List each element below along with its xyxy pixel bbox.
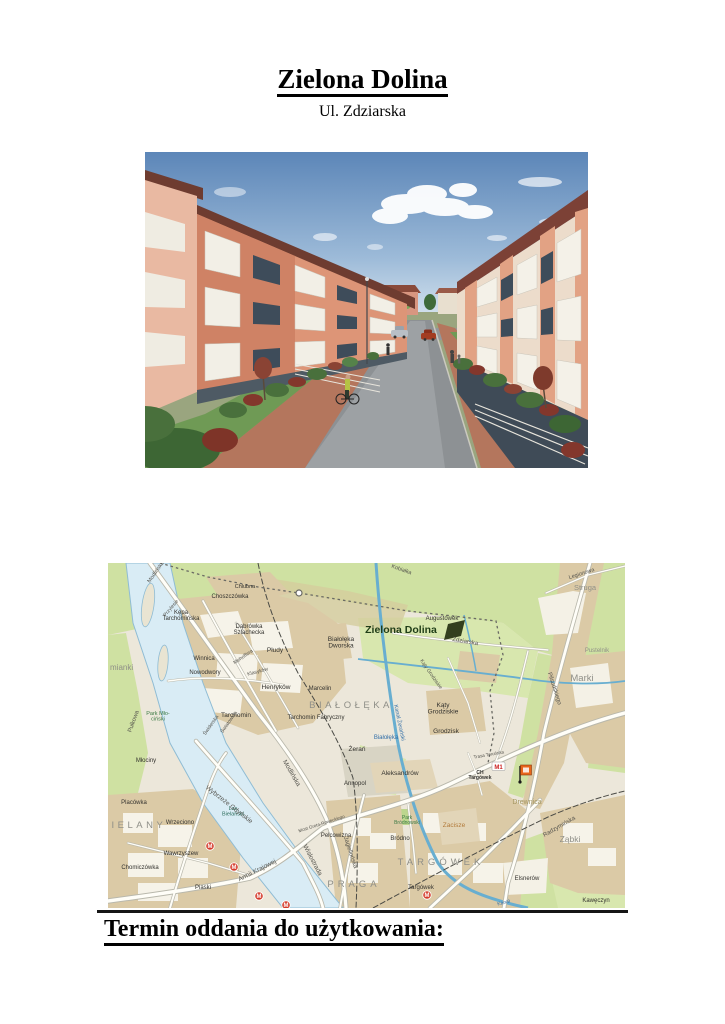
- map-label: Chomiczówka: [121, 865, 159, 871]
- map-label: Płudy: [267, 647, 284, 654]
- location-map-svg: M1 MMMMM ChlubnaChoszczówkaKępaTarchomiń…: [108, 563, 625, 908]
- metro-station-letter: M: [232, 865, 237, 871]
- map-label: Marki: [570, 673, 593, 684]
- map-label: Tarchomin Fabryczny: [287, 715, 344, 721]
- map-label: mianki: [110, 663, 133, 672]
- map-label: Pustelnik: [585, 648, 610, 654]
- map-label: Wawrzyszew: [164, 851, 199, 857]
- map-label: Targówek: [408, 885, 435, 891]
- map-label: PRAGA: [327, 879, 380, 890]
- map-label: Piaski: [195, 885, 211, 891]
- map-label: Choszczówka: [211, 594, 249, 600]
- map-label: DąbrówkaSzlachecka: [234, 624, 265, 636]
- estate-render-svg: [145, 152, 588, 468]
- map-label: Białołęka: [374, 735, 399, 741]
- page-subtitle: Ul. Zdziarska: [0, 103, 725, 121]
- map-label: Henryków: [262, 684, 291, 691]
- closing-heading: Termin oddania do użytkowania:: [104, 916, 444, 943]
- map-label: Aleksandrów: [381, 770, 419, 777]
- metro-station-letter: M: [208, 844, 213, 850]
- map-label: BIELANY: [108, 820, 166, 831]
- map-label: Struga: [574, 583, 597, 592]
- m1-mall-icon: M1: [492, 762, 505, 771]
- svg-text:M1: M1: [494, 765, 503, 771]
- map-label: Augustówek: [426, 616, 460, 622]
- page-title: Zielona Dolina: [0, 64, 725, 95]
- map-label: Żerań: [349, 744, 366, 753]
- page-title-text: Zielona Dolina: [277, 64, 447, 97]
- map-label: Młociny: [136, 758, 156, 764]
- map-label: Nowodwory: [189, 670, 220, 676]
- map-label: Bródno: [390, 836, 410, 842]
- map-label: Annopol: [344, 781, 366, 787]
- map-label: BIAŁOŁĘKA: [309, 700, 393, 711]
- map-label: BiałołękaDworska: [328, 636, 355, 650]
- estate-render-image: [145, 152, 588, 468]
- map-label: Elsnerów: [515, 876, 540, 882]
- map-label: Ząbki: [560, 834, 581, 844]
- map-label: Chlubna: [235, 584, 256, 590]
- metro-station-letter: M: [284, 903, 289, 908]
- map-label: Drewnica: [512, 799, 541, 806]
- boundary-node: [296, 590, 302, 596]
- map-label: Kawęczyn: [582, 898, 609, 904]
- map-label: Zielona Dolina: [365, 624, 437, 636]
- location-map-image: M1 MMMMM ChlubnaChoszczówkaKępaTarchomiń…: [97, 563, 628, 913]
- map-label: Zacisze: [443, 822, 466, 829]
- document-page: Zielona Dolina Ul. Zdziarska: [0, 0, 725, 1024]
- metro-station-letter: M: [257, 894, 262, 900]
- map-label: Grodzisk: [433, 728, 459, 735]
- map-label: TARGÓWEK: [398, 857, 485, 868]
- closing-heading-text: Termin oddania do użytkowania:: [104, 916, 444, 946]
- map-label: Wrzeciono: [166, 820, 195, 826]
- map-label: Winnica: [193, 656, 215, 662]
- map-label: Placówka: [121, 800, 147, 806]
- metro-station-letter: M: [425, 893, 430, 899]
- map-label: Marcelin: [309, 686, 332, 692]
